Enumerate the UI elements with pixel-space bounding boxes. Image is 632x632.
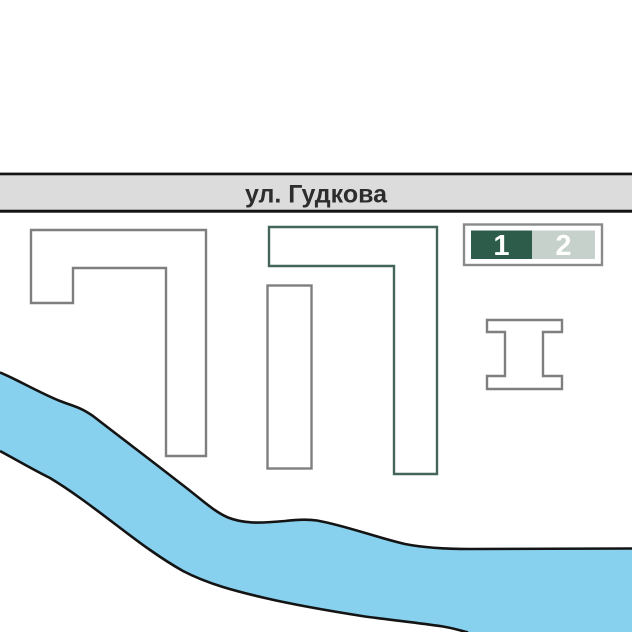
site-plan-map: ул. Гудкова 1 2 — [0, 0, 632, 632]
street-band: ул. Гудкова — [0, 173, 632, 213]
river-water — [0, 373, 632, 632]
street-top-line — [0, 173, 632, 176]
legend-item-2-label[interactable]: 2 — [555, 230, 571, 262]
street-bottom-line — [0, 210, 632, 213]
map-canvas: ул. Гудкова 1 2 — [0, 0, 632, 632]
street-name-label: ул. Гудкова — [245, 181, 388, 209]
building-center-annex-rect[interactable] — [268, 286, 312, 469]
legend-item-1-label[interactable]: 1 — [493, 230, 509, 262]
building-right-i-beam[interactable] — [487, 320, 562, 389]
legend: 1 2 — [464, 225, 602, 266]
river — [0, 373, 632, 632]
